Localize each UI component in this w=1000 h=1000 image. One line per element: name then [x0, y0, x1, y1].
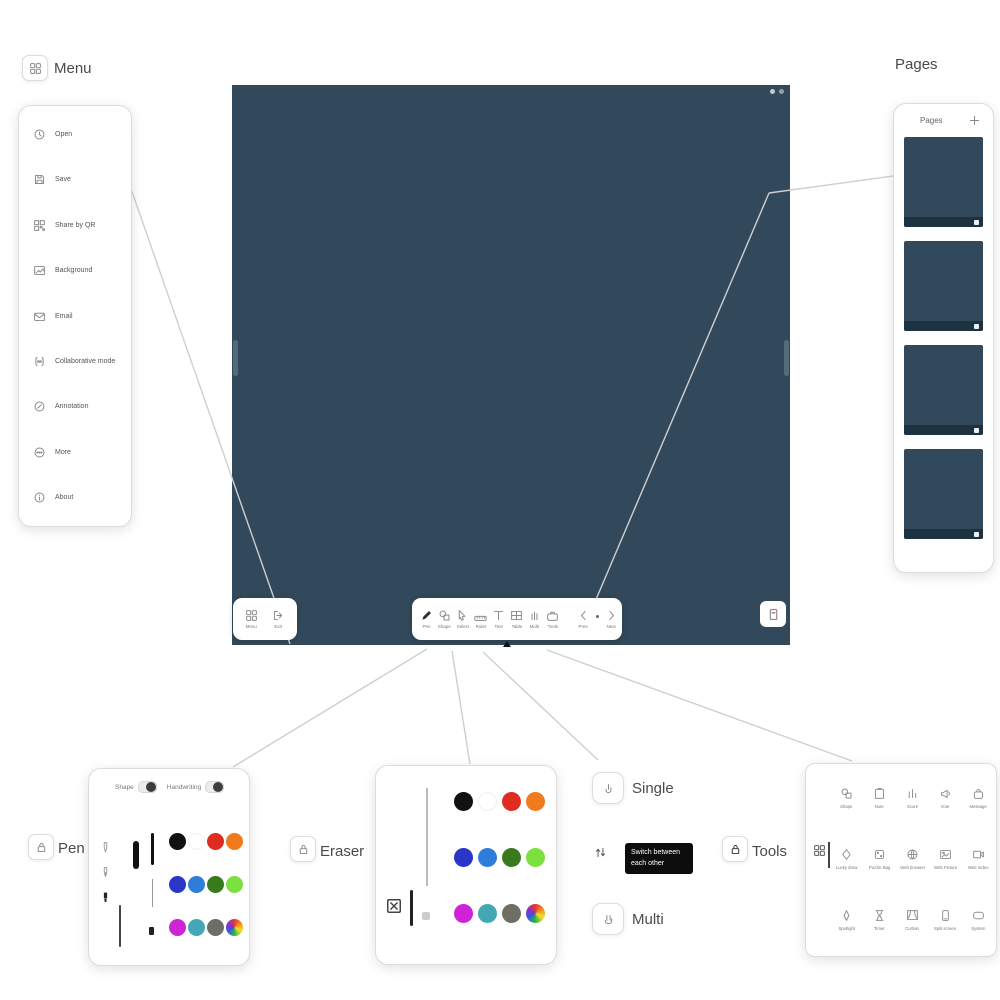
mail-icon: [33, 310, 46, 323]
ruler-icon: [474, 609, 487, 622]
color-swatch-red[interactable]: [207, 833, 224, 850]
left-side-toolbar-handle[interactable]: [233, 340, 238, 376]
color-swatch-magenta[interactable]: [454, 904, 473, 923]
tool-split-screen[interactable]: Split screen: [929, 890, 962, 951]
color-swatch-gray[interactable]: [502, 904, 521, 923]
color-swatch-light-green[interactable]: [526, 848, 545, 867]
menu-item-share-by-qr[interactable]: Share by QR: [33, 219, 131, 232]
page-thumbnail-1[interactable]: [904, 137, 983, 227]
marker-pen-icon[interactable]: [99, 891, 112, 904]
page-thumbnail-4[interactable]: [904, 449, 983, 539]
tools-lock-icon: [729, 843, 742, 856]
menu-item-collaborative-mode[interactable]: Collaborative mode: [33, 355, 131, 368]
stroke-preview-thin: [151, 833, 154, 865]
pen-size-slider[interactable]: [119, 905, 121, 947]
swap-arrows-icon: [594, 846, 607, 859]
whiteboard-canvas[interactable]: [232, 85, 790, 645]
menu-panel: OpenSaveShare by QRBackgroundEmailCollab…: [18, 105, 132, 527]
tool-label: Curtain: [906, 926, 920, 931]
table-icon: [510, 609, 523, 622]
color-swatch-orange[interactable]: [526, 792, 545, 811]
toolbar-button-table[interactable]: Table: [508, 609, 525, 630]
toolbar-left: MenuExit: [233, 598, 297, 640]
tool-shape[interactable]: Shape: [830, 768, 863, 829]
canvas-status-dot-2: [779, 89, 784, 94]
tool-system[interactable]: System: [962, 890, 995, 951]
toolbar-button-ruler[interactable]: Ruler: [472, 609, 489, 630]
tool-vote[interactable]: Vote: [929, 768, 962, 829]
eraser-color-palette: [454, 792, 550, 960]
toolbar-caret-marker: [503, 641, 511, 647]
menu-item-about[interactable]: About: [33, 491, 131, 504]
menu-item-label: About: [55, 494, 73, 501]
menu-item-open[interactable]: Open: [33, 128, 131, 141]
tool-label: Timer: [874, 926, 885, 931]
color-swatch-black[interactable]: [169, 833, 186, 850]
switch-tooltip: Switch between each other: [625, 843, 693, 874]
toggle-label: Shape: [115, 784, 134, 791]
eraser-stroke-preview: [410, 890, 413, 926]
hourglass-icon: [873, 909, 886, 922]
page-thumbnail-2[interactable]: [904, 241, 983, 331]
tool-message[interactable]: Message: [962, 768, 995, 829]
menu-item-label: Background: [55, 267, 92, 274]
thumbnail-footer: [904, 321, 983, 331]
menu-item-label: Email: [55, 313, 73, 320]
color-swatch-red[interactable]: [502, 792, 521, 811]
color-swatch-black[interactable]: [454, 792, 473, 811]
tool-score[interactable]: Score: [896, 768, 929, 829]
menu-item-annotation[interactable]: Annotation: [33, 400, 131, 413]
thumbnail-delete-icon[interactable]: [974, 220, 979, 225]
ballpoint-pen-icon[interactable]: [99, 841, 112, 854]
thumbnail-footer: [904, 217, 983, 227]
color-swatch-orange[interactable]: [226, 833, 243, 850]
pages-panel-header: Pages: [894, 104, 993, 131]
chevron-right-icon: [605, 609, 618, 622]
single-touch-badge[interactable]: [592, 772, 624, 804]
color-swatch-dark-green[interactable]: [502, 848, 521, 867]
pen-callout-label: Pen: [58, 840, 85, 857]
tools-grid-icon[interactable]: [813, 844, 826, 857]
tool-label: Web browser: [900, 865, 925, 870]
stroke-slider-handle[interactable]: [149, 927, 154, 935]
toolbar-button-label: Tools: [547, 624, 558, 629]
phone-icon: [939, 909, 952, 922]
snapshot-icon: [767, 608, 780, 621]
note-icon: [873, 787, 886, 800]
toggle-switch-shape[interactable]: [138, 781, 157, 793]
toolbar-button-label: Table: [511, 624, 522, 629]
tool-label: Score: [907, 804, 918, 809]
tool-note[interactable]: Note: [863, 768, 896, 829]
add-page-icon[interactable]: [968, 114, 981, 127]
toolbar-page-nav: Prev Next: [575, 609, 620, 630]
picture-icon: [939, 848, 952, 861]
tools-grid: ShapeNoteScoreVoteMessageLucky drawPuzzl…: [830, 768, 995, 951]
bag-icon: [972, 787, 985, 800]
toggle-switch-handwriting[interactable]: [205, 781, 224, 793]
eraser-slider-handle[interactable]: [422, 912, 430, 920]
color-swatch-navy[interactable]: [454, 848, 473, 867]
toolbar-button-label: Exit: [275, 624, 283, 629]
color-swatch-custom[interactable]: [226, 919, 243, 936]
thumbnail-footer: [904, 425, 983, 435]
prev-page-label: Prev: [579, 624, 588, 629]
pen-lock-icon: [35, 841, 48, 854]
diamond-icon: [840, 848, 853, 861]
toolbar-button-text[interactable]: Text: [490, 609, 507, 630]
menu-item-background[interactable]: Background: [33, 264, 131, 277]
tool-label: Puzzle Bag: [869, 865, 891, 870]
tool-label: Message: [970, 804, 987, 809]
menu-item-label: Share by QR: [55, 222, 95, 229]
multi-finger-icon: [602, 913, 615, 926]
menu-item-email[interactable]: Email: [33, 310, 131, 323]
globe-icon: [906, 848, 919, 861]
multi-icon: [528, 609, 541, 622]
eraser-lock-icon: [297, 843, 310, 856]
tools-panel: ShapeNoteScoreVoteMessageLucky drawPuzzl…: [805, 763, 997, 957]
menu-item-label: More: [55, 449, 71, 456]
clear-all-icon[interactable]: [384, 896, 404, 916]
thumbnail-delete-icon[interactable]: [974, 324, 979, 329]
tool-web-video[interactable]: Web Video: [962, 829, 995, 890]
tool-timer[interactable]: Timer: [863, 890, 896, 951]
sysrect-icon: [972, 909, 985, 922]
toolbar-center-group: PenShapeSelectRulerTextTableMultiTools: [418, 609, 561, 630]
color-swatch-dark-green[interactable]: [207, 876, 224, 893]
about-icon: [33, 491, 46, 504]
thumbnail-delete-icon[interactable]: [974, 532, 979, 537]
toolbar-button-pen[interactable]: Pen: [418, 609, 435, 630]
color-swatch-white[interactable]: [188, 833, 205, 850]
eraser-settings-popup: [375, 765, 557, 965]
toolbar-button-menu[interactable]: Menu: [243, 609, 260, 630]
video-icon: [972, 848, 985, 861]
tools-callout-label: Tools: [752, 843, 787, 860]
color-swatch-custom[interactable]: [526, 904, 545, 923]
menu-item-label: Collaborative mode: [55, 358, 115, 365]
pages-thumbnail-list: [894, 131, 993, 545]
tool-curtain[interactable]: Curtain: [896, 890, 929, 951]
stroke-preview-wide: [133, 841, 139, 869]
toolbar-button-label: Pen: [422, 624, 430, 629]
color-swatch-teal[interactable]: [478, 904, 497, 923]
pen-settings-popup: ShapeHandwriting: [88, 768, 250, 966]
tool-web-picture[interactable]: Web Picture: [929, 829, 962, 890]
tool-label: Vote: [941, 804, 950, 809]
pen-type-list: [99, 841, 112, 904]
next-page-label: Next: [607, 624, 616, 629]
toolbar-button-label: Shape: [438, 624, 451, 629]
toolbar-button-label: Ruler: [475, 624, 486, 629]
pen-icon: [420, 609, 433, 622]
vote-icon: [939, 787, 952, 800]
menu-item-more[interactable]: More: [33, 446, 131, 459]
score-icon: [906, 787, 919, 800]
eraser-size-slider[interactable]: [426, 788, 428, 886]
color-swatch-blue[interactable]: [188, 876, 205, 893]
tool-label: Note: [875, 804, 884, 809]
right-side-toolbar-handle[interactable]: [784, 340, 789, 376]
tool-label: Shape: [840, 804, 852, 809]
fountain-pen-icon[interactable]: [99, 866, 112, 879]
multi-touch-badge[interactable]: [592, 903, 624, 935]
snapshot-button[interactable]: [760, 601, 786, 627]
single-callout-label: Single: [632, 780, 674, 797]
pages-panel-title: Pages: [920, 116, 943, 125]
pen-badge[interactable]: [28, 834, 54, 860]
collab-icon: [33, 355, 46, 368]
pen-toggle-row: ShapeHandwriting: [89, 769, 249, 793]
tool-label: System: [971, 926, 985, 931]
annot-icon: [33, 400, 46, 413]
shape-icon: [840, 787, 853, 800]
chevron-left-icon: [577, 609, 590, 622]
tool-label: Web Video: [968, 865, 989, 870]
prev-page-button[interactable]: Prev: [575, 609, 592, 630]
toolbar-button-label: Menu: [246, 624, 257, 629]
menu-callout-label: Menu: [54, 60, 92, 77]
menu-grid-icon: [29, 62, 42, 75]
curtain-icon: [906, 909, 919, 922]
toggle-label: Handwriting: [167, 784, 201, 791]
exit-icon: [272, 609, 285, 622]
tool-puzzle-bag[interactable]: Puzzle Bag: [863, 829, 896, 890]
tools-badge[interactable]: [722, 836, 748, 862]
qr-icon: [33, 219, 46, 232]
tool-label: Lucky draw: [836, 865, 858, 870]
tool-spotlight[interactable]: Spotlight: [830, 890, 863, 951]
color-swatch-blue[interactable]: [478, 848, 497, 867]
image-icon: [33, 264, 46, 277]
text-icon: [492, 609, 505, 622]
current-page-dot: [596, 615, 599, 618]
menu-badge[interactable]: [22, 55, 48, 81]
pen-color-palette: [169, 833, 245, 962]
eraser-callout-label: Eraser: [320, 843, 364, 860]
menu-item-label: Open: [55, 131, 72, 138]
tool-label: Web Picture: [934, 865, 957, 870]
shape-icon: [438, 609, 451, 622]
menu-item-save[interactable]: Save: [33, 173, 131, 186]
tool-label: Spotlight: [838, 926, 855, 931]
pages-panel: Pages: [893, 103, 994, 573]
toolbar-button-tools[interactable]: Tools: [544, 609, 561, 630]
toolbar-button-exit[interactable]: Exit: [270, 609, 287, 630]
toolbar-button-label: Select: [456, 624, 469, 629]
toolbar-button-multi[interactable]: Multi: [526, 609, 543, 630]
single-finger-icon: [602, 782, 615, 795]
page-thumbnail-3[interactable]: [904, 345, 983, 435]
color-swatch-light-green[interactable]: [226, 876, 243, 893]
toolbar-button-shape[interactable]: Shape: [436, 609, 453, 630]
color-swatch-teal[interactable]: [188, 919, 205, 936]
toolbar-button-label: Text: [494, 624, 502, 629]
next-page-button[interactable]: Next: [603, 609, 620, 630]
menu-item-label: Annotation: [55, 403, 88, 410]
canvas-status-dot-1: [770, 89, 775, 94]
pages-callout-label: Pages: [895, 56, 938, 73]
tool-lucky-draw[interactable]: Lucky draw: [830, 829, 863, 890]
more-icon: [33, 446, 46, 459]
toolbar-main: PenShapeSelectRulerTextTableMultiTools P…: [412, 598, 622, 640]
menu-panel-list: OpenSaveShare by QRBackgroundEmailCollab…: [19, 106, 131, 526]
select-icon: [456, 609, 469, 622]
menu-item-label: Save: [55, 176, 71, 183]
grid4-icon: [245, 609, 258, 622]
clock-icon: [33, 128, 46, 141]
stroke-width-slider[interactable]: [152, 879, 153, 907]
thumbnail-delete-icon[interactable]: [974, 428, 979, 433]
color-swatch-gray[interactable]: [207, 919, 224, 936]
toolbar-button-label: Multi: [530, 624, 540, 629]
tool-web-browser[interactable]: Web browser: [896, 829, 929, 890]
save-icon: [33, 173, 46, 186]
dice-icon: [873, 848, 886, 861]
tool-label: Split screen: [934, 926, 956, 931]
color-swatch-white[interactable]: [478, 792, 497, 811]
toggle-shape: Shape: [115, 781, 157, 793]
eraser-badge[interactable]: [290, 836, 316, 862]
color-swatch-magenta[interactable]: [169, 919, 186, 936]
toggle-handwriting: Handwriting: [167, 781, 224, 793]
spotlight-icon: [840, 909, 853, 922]
tools-icon: [546, 609, 559, 622]
multi-callout-label: Multi: [632, 911, 664, 928]
thumbnail-footer: [904, 529, 983, 539]
toolbar-button-select[interactable]: Select: [454, 609, 471, 630]
color-swatch-navy[interactable]: [169, 876, 186, 893]
